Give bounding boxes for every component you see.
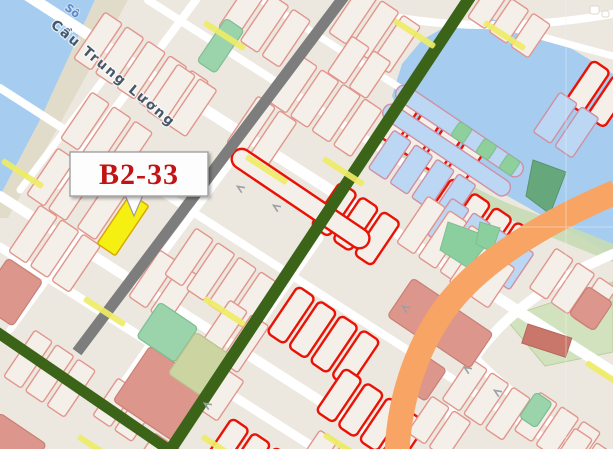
poi-icon (602, 11, 609, 17)
map-canvas[interactable]: Sô Cầu Trung Lương B2-33 (0, 0, 613, 449)
poi-icon (590, 6, 599, 14)
map-viewport[interactable]: Sô Cầu Trung Lương B2-33 (0, 0, 613, 449)
marker-label: B2-33 (99, 158, 179, 191)
